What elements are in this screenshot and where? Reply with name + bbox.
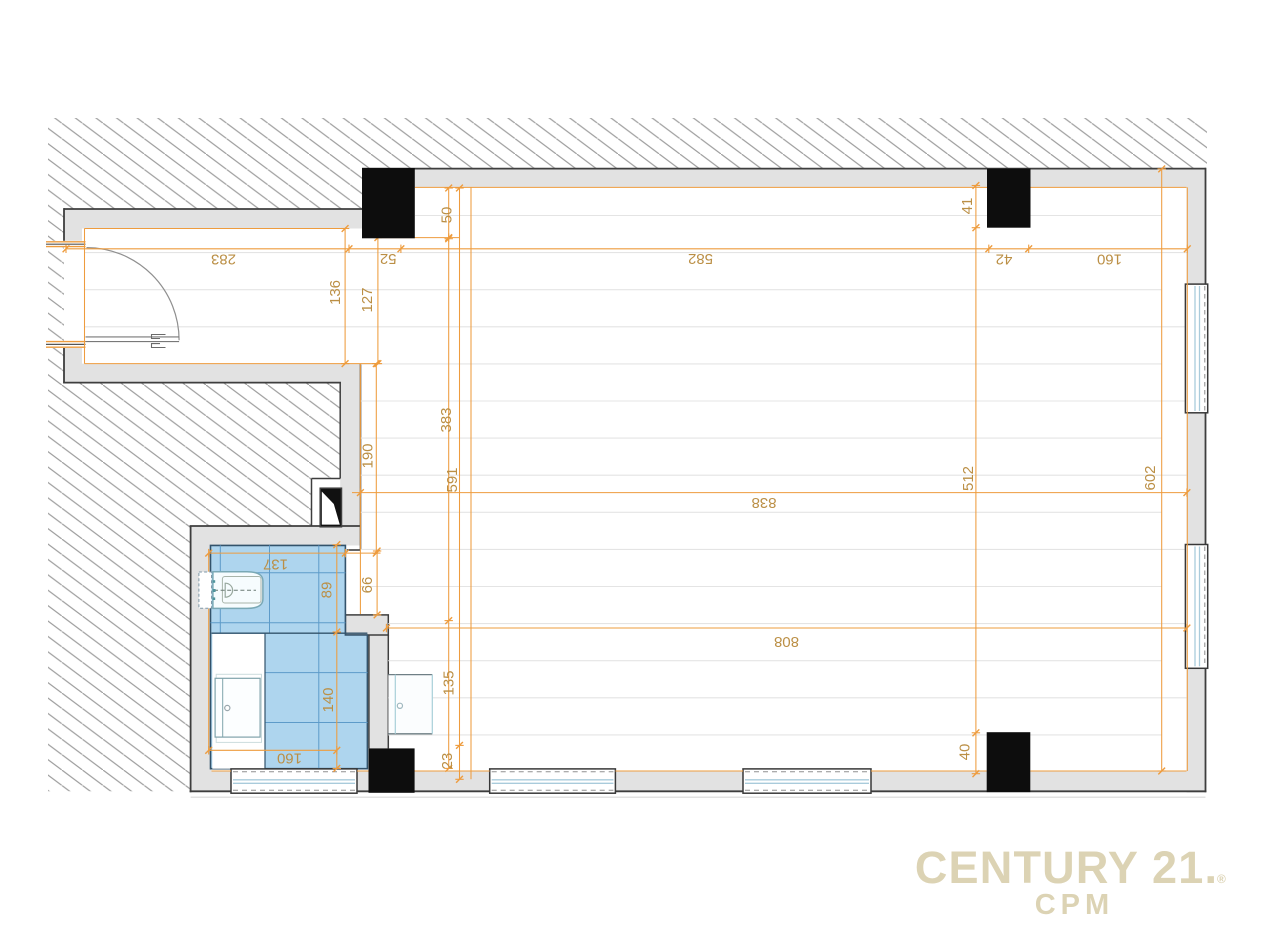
svg-text:160: 160 xyxy=(277,750,302,767)
svg-text:135: 135 xyxy=(441,670,458,695)
svg-text:383: 383 xyxy=(438,407,455,432)
svg-text:808: 808 xyxy=(774,633,799,650)
svg-text:137: 137 xyxy=(263,556,288,573)
svg-text:41: 41 xyxy=(959,198,976,215)
svg-text:127: 127 xyxy=(359,287,376,312)
svg-text:140: 140 xyxy=(320,687,337,712)
svg-text:160: 160 xyxy=(1097,251,1122,268)
svg-text:190: 190 xyxy=(360,443,377,468)
svg-text:66: 66 xyxy=(359,577,376,594)
svg-text:283: 283 xyxy=(211,250,236,267)
svg-text:23: 23 xyxy=(439,753,456,770)
svg-text:40: 40 xyxy=(957,744,974,761)
svg-text:591: 591 xyxy=(444,467,461,492)
svg-text:89: 89 xyxy=(319,582,336,599)
svg-text:582: 582 xyxy=(688,250,713,267)
svg-text:838: 838 xyxy=(751,494,776,511)
svg-text:50: 50 xyxy=(439,207,456,224)
svg-text:136: 136 xyxy=(327,280,344,305)
svg-text:52: 52 xyxy=(380,250,397,267)
svg-text:602: 602 xyxy=(1142,465,1159,490)
svg-text:512: 512 xyxy=(960,466,977,491)
svg-text:42: 42 xyxy=(996,251,1013,268)
